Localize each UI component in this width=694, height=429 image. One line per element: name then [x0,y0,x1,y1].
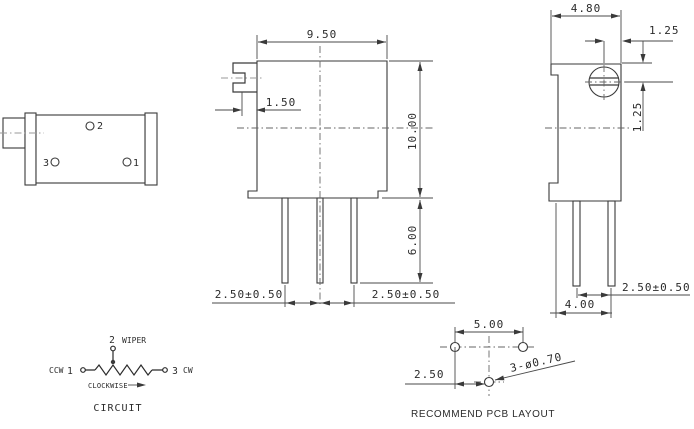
circuit-cw-label: CW [183,366,193,375]
dim-pcb-hole-spacing: 5.00 [474,318,505,331]
circuit-clockwise-label: CLOCKWISE [88,382,128,390]
dim-front-pitch-left: 2.50±0.50 [215,288,284,301]
cw-terminal [163,368,168,373]
pcb-hole-center [485,378,494,387]
dim-pcb-row-offset: 2.50 [414,368,445,381]
circuit-wiper-label: WIPER [122,336,146,345]
terminal-3-label: 3 [43,158,50,169]
wiper-terminal [111,346,116,351]
dim-screw-offset-v: 1.25 [631,102,644,133]
front-view: 9.50 1.50 10.00 6.00 2.50±0.50 2.50±0.50 [212,28,455,307]
pcb-layout: 5.00 2.50 3-ø0.70 RECOMMEND PCB LAYOUT [405,318,575,420]
circuit-pin3-label: 3 [172,366,178,377]
resistor-zigzag [95,365,152,375]
dim-screw-offset-h: 1.25 [649,24,680,37]
circuit-diagram: 2 WIPER CCW 1 3 CW CLOCKWISE CIRCUIT [49,335,193,414]
trimmer-potentiometer-drawing: 2 3 1 9.50 1.50 10.00 6.00 [0,0,694,429]
terminal-1-label: 1 [133,158,140,169]
terminal-2-label: 2 [97,121,104,132]
dim-pcb-hole-diameter: 3-ø0.70 [509,350,564,375]
dim-front-width: 9.50 [307,28,338,41]
dim-front-shaft: 1.50 [266,96,297,109]
pcb-caption: RECOMMEND PCB LAYOUT [411,409,555,420]
dim-side-width: 4.80 [571,2,602,15]
dim-side-pin-span: 4.00 [565,298,596,311]
pin-3 [351,198,357,283]
circuit-caption: CIRCUIT [93,403,142,414]
circuit-pin2-label: 2 [109,335,115,346]
circuit-ccw-label: CCW [49,366,64,375]
pin-front [573,201,580,286]
terminal-2-hole [86,122,94,130]
right-flange [145,113,157,185]
side-view-left: 2 3 1 [0,113,157,185]
body-outline [248,61,387,198]
wiper-junction-dot [111,360,115,364]
side-view-right: 4.80 1.25 1.25 2.50±0.50 4.00 [545,2,691,318]
pcb-hole-right [519,343,528,352]
pin-rear [608,201,615,286]
terminal-3-hole [51,158,59,166]
dim-front-pitch-right: 2.50±0.50 [372,288,441,301]
ccw-terminal [81,368,86,373]
dim-front-height: 10.00 [406,112,419,150]
left-flange [25,113,36,185]
terminal-1-hole [123,158,131,166]
circuit-pin1-label: 1 [67,366,73,377]
dim-front-pin-length: 6.00 [406,225,419,256]
clockwise-arrowhead [137,383,146,388]
technical-drawing-canvas: 2 3 1 9.50 1.50 10.00 6.00 [0,0,694,429]
pin-1 [282,198,288,283]
dim-side-pin-pitch: 2.50±0.50 [622,281,691,294]
